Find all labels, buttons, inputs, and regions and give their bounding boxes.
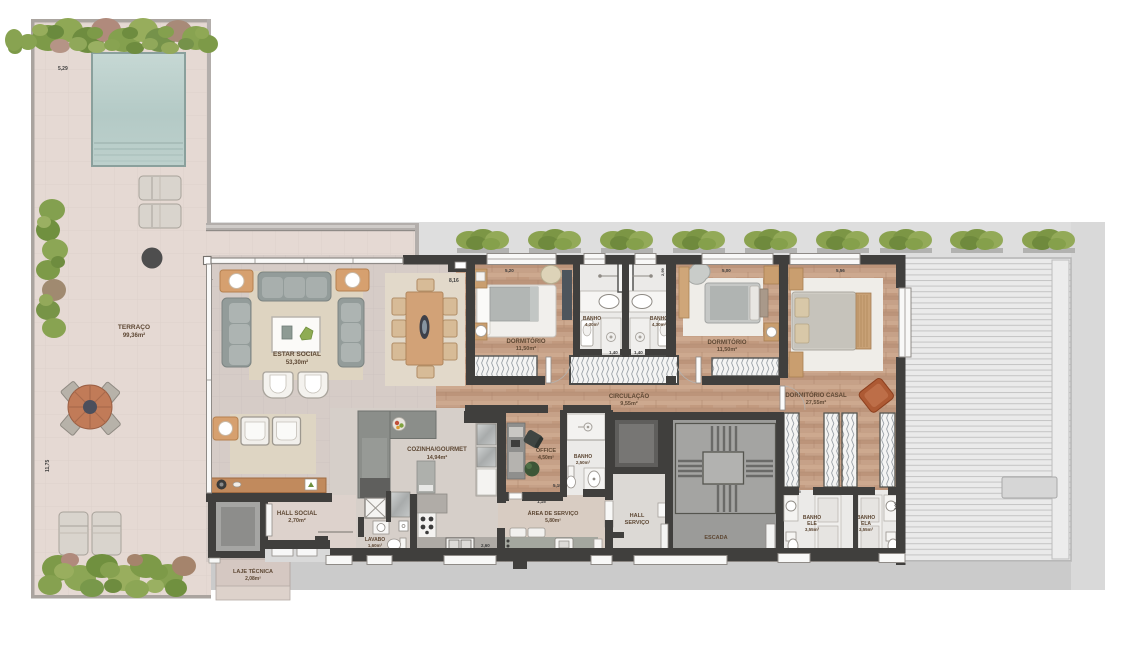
svg-text:CIRCULAÇÃO: CIRCULAÇÃO [609,393,650,400]
svg-text:5,20: 5,20 [505,268,514,273]
svg-text:2,99: 2,99 [660,267,665,276]
svg-text:DORMITÓRIO CASAL: DORMITÓRIO CASAL [785,391,847,399]
svg-text:ÁREA DE SERVIÇO: ÁREA DE SERVIÇO [528,510,579,517]
svg-text:11,50m²: 11,50m² [717,346,737,353]
svg-text:5,56: 5,56 [836,268,845,273]
svg-text:11,75: 11,75 [45,460,51,472]
svg-text:3,55m²: 3,55m² [805,527,820,532]
svg-text:3,55m²: 3,55m² [859,527,874,532]
svg-text:ESCADA: ESCADA [704,535,727,541]
svg-text:2,50m²: 2,50m² [576,460,591,465]
svg-text:OFFICE: OFFICE [536,448,556,454]
svg-text:11,50m²: 11,50m² [516,345,536,352]
svg-text:4,30m²: 4,30m² [652,322,667,327]
svg-text:99,36m²: 99,36m² [123,332,145,339]
svg-text:14,94m²: 14,94m² [427,454,448,461]
svg-text:SERVIÇO: SERVIÇO [625,520,650,526]
svg-text:ESTAR SOCIAL: ESTAR SOCIAL [273,351,321,358]
svg-text:53,30m²: 53,30m² [286,359,308,366]
svg-text:9,55m²: 9,55m² [620,400,638,407]
svg-text:8,16: 8,16 [449,278,459,284]
svg-text:1,60m²: 1,60m² [368,543,383,548]
svg-text:DORMITÓRIO: DORMITÓRIO [507,337,546,345]
svg-text:HALL SOCIAL: HALL SOCIAL [277,511,318,517]
svg-text:2,60: 2,60 [481,543,490,548]
svg-text:TERRAÇO: TERRAÇO [118,324,150,331]
svg-text:5,00: 5,00 [722,268,731,273]
svg-text:1,40: 1,40 [634,350,643,355]
svg-text:HALL: HALL [630,513,645,519]
svg-text:2,08m²: 2,08m² [245,576,261,582]
svg-text:2,70m²: 2,70m² [288,517,306,524]
svg-text:5,29: 5,29 [58,66,68,72]
svg-text:4,30m²: 4,30m² [585,322,600,327]
svg-text:5,80m²: 5,80m² [545,518,561,524]
svg-text:1,40: 1,40 [609,350,618,355]
svg-text:LAJE TÉCNICA: LAJE TÉCNICA [233,567,273,575]
svg-text:DORMITÓRIO: DORMITÓRIO [708,338,747,346]
svg-text:4,50m²: 4,50m² [538,455,554,461]
svg-text:27,55m²: 27,55m² [806,399,827,406]
svg-text:COZINHA/GOURMET: COZINHA/GOURMET [407,447,467,453]
